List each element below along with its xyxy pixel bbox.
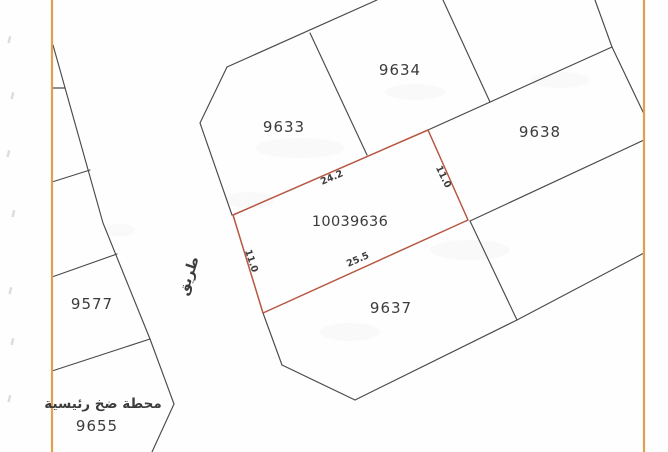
scan-smudge	[430, 240, 510, 260]
scan-smudge	[320, 323, 380, 341]
scan-speck	[11, 210, 15, 217]
block-northwest-edge	[227, 0, 377, 67]
west-strip-divider-2	[52, 170, 90, 182]
pump-station-label: محطة ضخ رئيسية	[44, 396, 161, 412]
divider-9637-east	[470, 221, 517, 320]
parcel-number-9577: 9577	[71, 295, 113, 313]
divider-9633-9634	[310, 33, 367, 155]
parcel-9637-west-edge	[263, 313, 282, 365]
west-strip-divider-3	[52, 254, 117, 277]
scan-smudge	[385, 84, 445, 100]
dimension-label: 25.5	[345, 250, 371, 270]
parcel-number-9638: 9638	[519, 123, 561, 141]
dimension-label: 24.2	[319, 168, 345, 187]
parcel-number-9637: 9637	[370, 299, 412, 317]
cadastral-map: 9633963496389637957796551003963624.211.0…	[0, 0, 668, 452]
parcel-9637-southwest-edge	[282, 365, 355, 400]
cadastral-map-svg: 9633963496389637957796551003963624.211.0…	[0, 0, 668, 452]
northeast-corner-edge	[595, 0, 612, 47]
parcel-number-9633: 9633	[263, 118, 305, 136]
scan-smudge	[255, 138, 345, 158]
west-strip-divider-4	[52, 339, 150, 371]
parcel-number-9655: 9655	[76, 417, 118, 435]
selected-parcel-number: 10039636	[312, 214, 388, 230]
block-top-street-line	[428, 47, 612, 130]
dimension-label: 11.0	[242, 248, 260, 274]
scan-speck	[8, 287, 12, 294]
scan-speck	[6, 150, 10, 157]
parcel-9638-south-edge	[470, 140, 644, 221]
parcel-number-9634: 9634	[379, 61, 421, 79]
parcel-9638-northeast-edge	[612, 47, 644, 114]
block-south-street-line	[355, 253, 644, 400]
dimension-label: 11.0	[433, 164, 453, 190]
scan-smudge	[105, 224, 135, 236]
scan-speck	[10, 338, 14, 345]
parcel-9633-west-edge	[200, 67, 232, 215]
road-label: طريق	[175, 255, 203, 298]
scan-speck	[7, 395, 11, 402]
scan-speck	[7, 36, 11, 43]
parcel-9634-east-edge	[443, 0, 490, 102]
scan-speck	[10, 92, 14, 99]
